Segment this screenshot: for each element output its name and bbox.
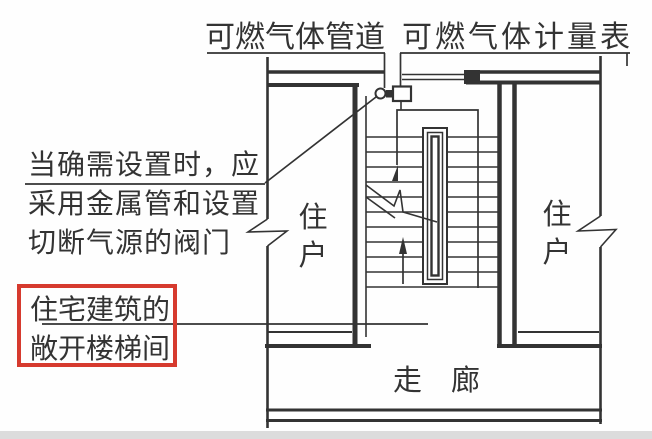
highlight-line-1: 住宅建筑的	[30, 291, 173, 330]
unit-left-label: 住 户	[298, 199, 328, 275]
floor-plan-figure: 可燃气体管道 可燃气体计量表 当确需设置时，应 采用金属管和设置 切断气源的阀门…	[0, 0, 652, 439]
label-gas-meter: 可燃气体计量表	[402, 12, 633, 56]
gas-pipe-icon	[402, 70, 480, 84]
note-line-3: 切断气源的阀门	[28, 224, 260, 263]
stair-well-rails	[423, 128, 447, 284]
highlight-box: 住宅建筑的 敞开楼梯间	[17, 284, 177, 367]
wall-break-right-icon	[578, 216, 616, 247]
staircase	[366, 110, 498, 288]
stair-up-arrow-icon	[399, 237, 407, 284]
note-text: 当确需设置时，应 采用金属管和设置 切断气源的阀门	[28, 146, 260, 263]
corridor-label: 走廊	[393, 357, 509, 399]
gas-meter-icon	[393, 87, 411, 111]
bottom-border-strip	[0, 431, 652, 439]
note-line-2: 采用金属管和设置	[28, 185, 260, 224]
highlight-line-2: 敞开楼梯间	[30, 330, 173, 369]
shutoff-valve-icon	[376, 89, 394, 99]
unit-right-label: 住 户	[542, 196, 572, 272]
note-line-1: 当确需设置时，应	[28, 146, 260, 185]
label-gas-pipeline: 可燃气体管道	[205, 12, 385, 56]
